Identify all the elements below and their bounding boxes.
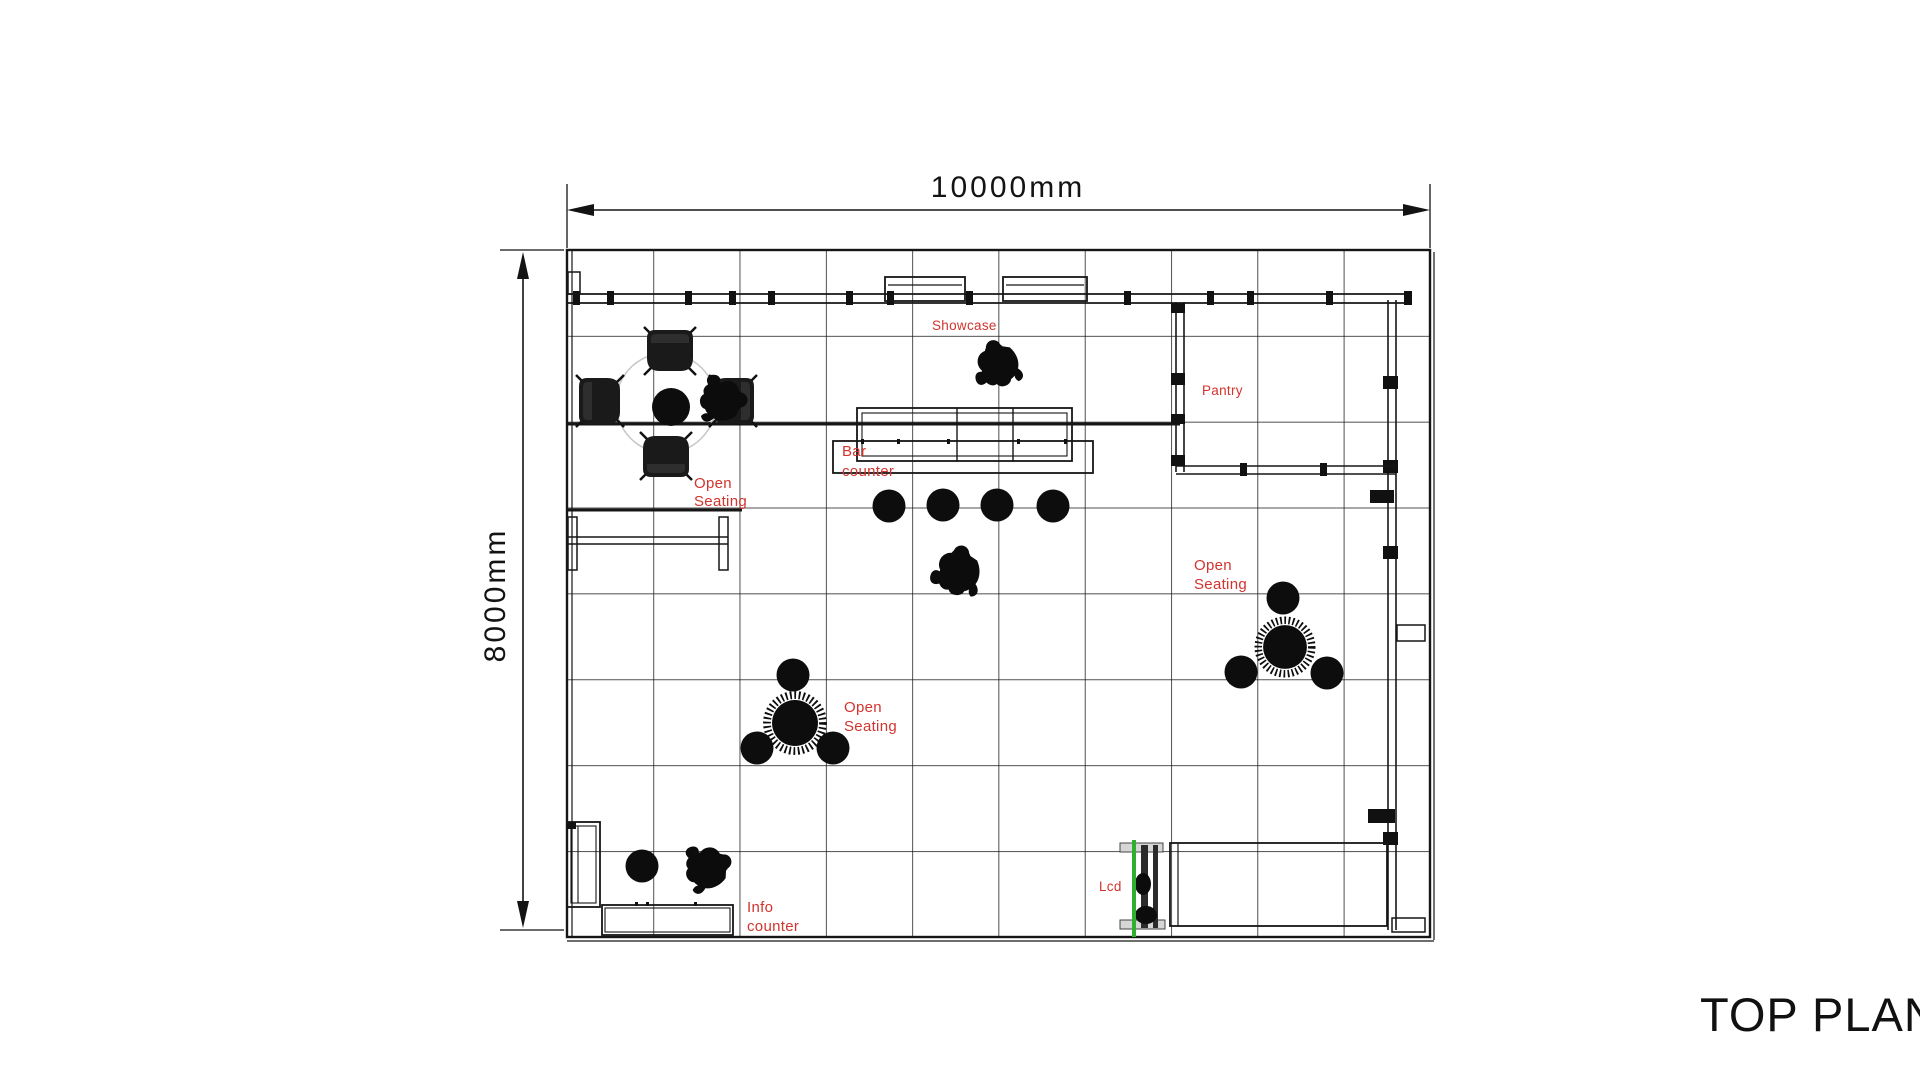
stool <box>1267 582 1300 615</box>
round-table <box>1258 620 1312 674</box>
label-lcd: Lcd <box>1099 879 1122 894</box>
label-info-counter: Info <box>747 899 773 916</box>
bar-stool <box>981 489 1014 522</box>
chair <box>640 432 692 480</box>
round-table-small <box>652 388 690 426</box>
stool <box>1225 656 1258 689</box>
chair <box>644 327 696 375</box>
height-dimension: 8000mm <box>479 250 564 930</box>
bar-stool <box>927 489 960 522</box>
stool <box>1311 657 1344 690</box>
round-table <box>767 695 823 751</box>
label-open-seating-center: Open <box>844 699 882 716</box>
bar-stool <box>1037 490 1070 523</box>
label-open-seating-left: Seating <box>694 493 747 510</box>
stool <box>777 659 810 692</box>
floor-plan-drawing: Showcase Pantry Bar counter Open Seating… <box>0 0 1920 1080</box>
wall-fixture <box>1368 809 1395 823</box>
label-info-counter: counter <box>747 918 799 935</box>
floor-plan-screenshot: Showcase Pantry Bar counter Open Seating… <box>0 0 1920 1080</box>
label-bar-counter: counter <box>842 463 894 480</box>
label-open-seating-left: Open <box>694 475 732 492</box>
label-bar-counter: Bar <box>842 443 866 460</box>
label-open-seating-right: Open <box>1194 557 1232 574</box>
bar-stool <box>873 490 906 523</box>
drawing-title: TOP PLAN <box>1700 988 1920 1041</box>
width-dimension-text: 10000mm <box>931 171 1085 204</box>
stool <box>626 850 659 883</box>
chair <box>576 375 624 427</box>
label-open-seating-center: Seating <box>844 718 897 735</box>
label-pantry: Pantry <box>1202 383 1243 398</box>
height-dimension-text: 8000mm <box>479 528 512 663</box>
width-dimension: 10000mm <box>567 171 1430 248</box>
wall-fixture <box>1370 490 1394 503</box>
label-open-seating-right: Seating <box>1194 576 1247 593</box>
label-showcase: Showcase <box>932 318 997 333</box>
